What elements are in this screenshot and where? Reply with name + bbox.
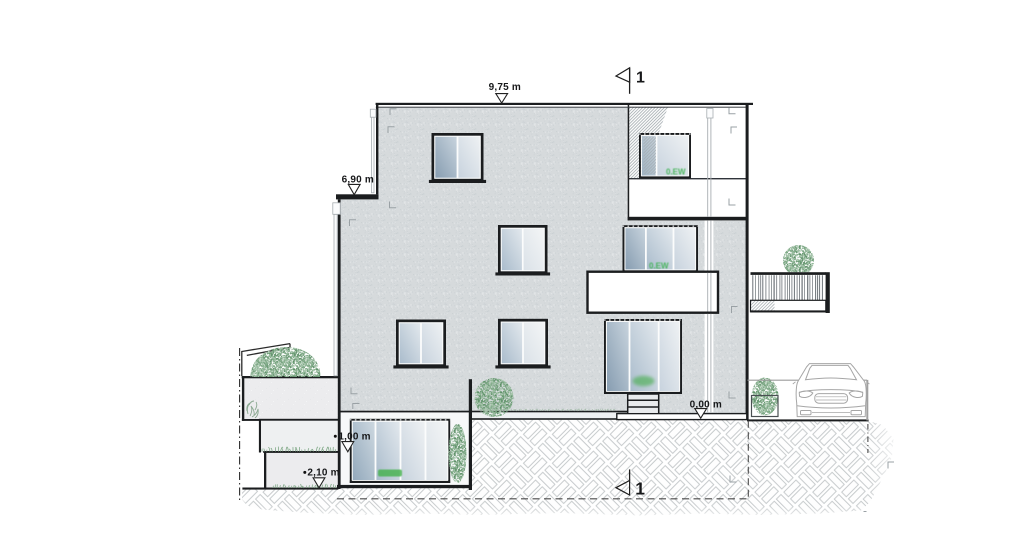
svg-text:0.EW: 0.EW [666,168,686,177]
svg-text:2,10 m: 2,10 m [307,467,339,478]
svg-text:0.EW: 0.EW [649,261,669,270]
svg-text:1: 1 [635,478,645,498]
svg-text:9,75 m: 9,75 m [489,82,521,93]
svg-text:1,00 m: 1,00 m [338,431,370,442]
svg-text:6,90 m: 6,90 m [342,174,374,185]
svg-text:1: 1 [636,69,645,86]
